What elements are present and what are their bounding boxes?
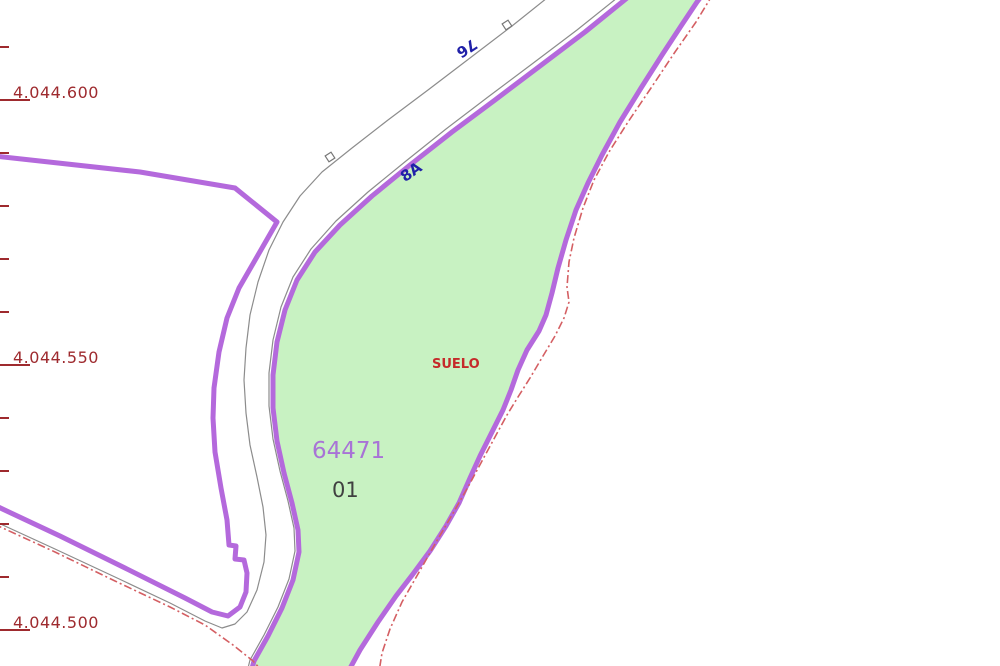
map-canvas[interactable]: 4.044.600 4.044.550 4.044.500 76 8A SUEL… bbox=[0, 0, 1000, 666]
grid-label-north-550: 4.044.550 bbox=[13, 348, 99, 367]
grid-label-north-600: 4.044.600 bbox=[13, 83, 99, 102]
boundary-line-west bbox=[0, 156, 277, 616]
grid-ticks bbox=[0, 47, 30, 630]
parcel-sub-label: 01 bbox=[332, 478, 359, 502]
land-use-label: SUELO bbox=[432, 357, 480, 372]
km-marker-icon bbox=[325, 152, 335, 162]
parcel-polygon[interactable] bbox=[251, 0, 703, 666]
road-label-76: 76 bbox=[453, 35, 480, 61]
grid-label-north-500: 4.044.500 bbox=[13, 613, 99, 632]
parcel-id-label: 64471 bbox=[312, 438, 385, 464]
limit-dashed-line-southwest bbox=[0, 524, 263, 666]
km-marker-icon bbox=[502, 20, 512, 30]
